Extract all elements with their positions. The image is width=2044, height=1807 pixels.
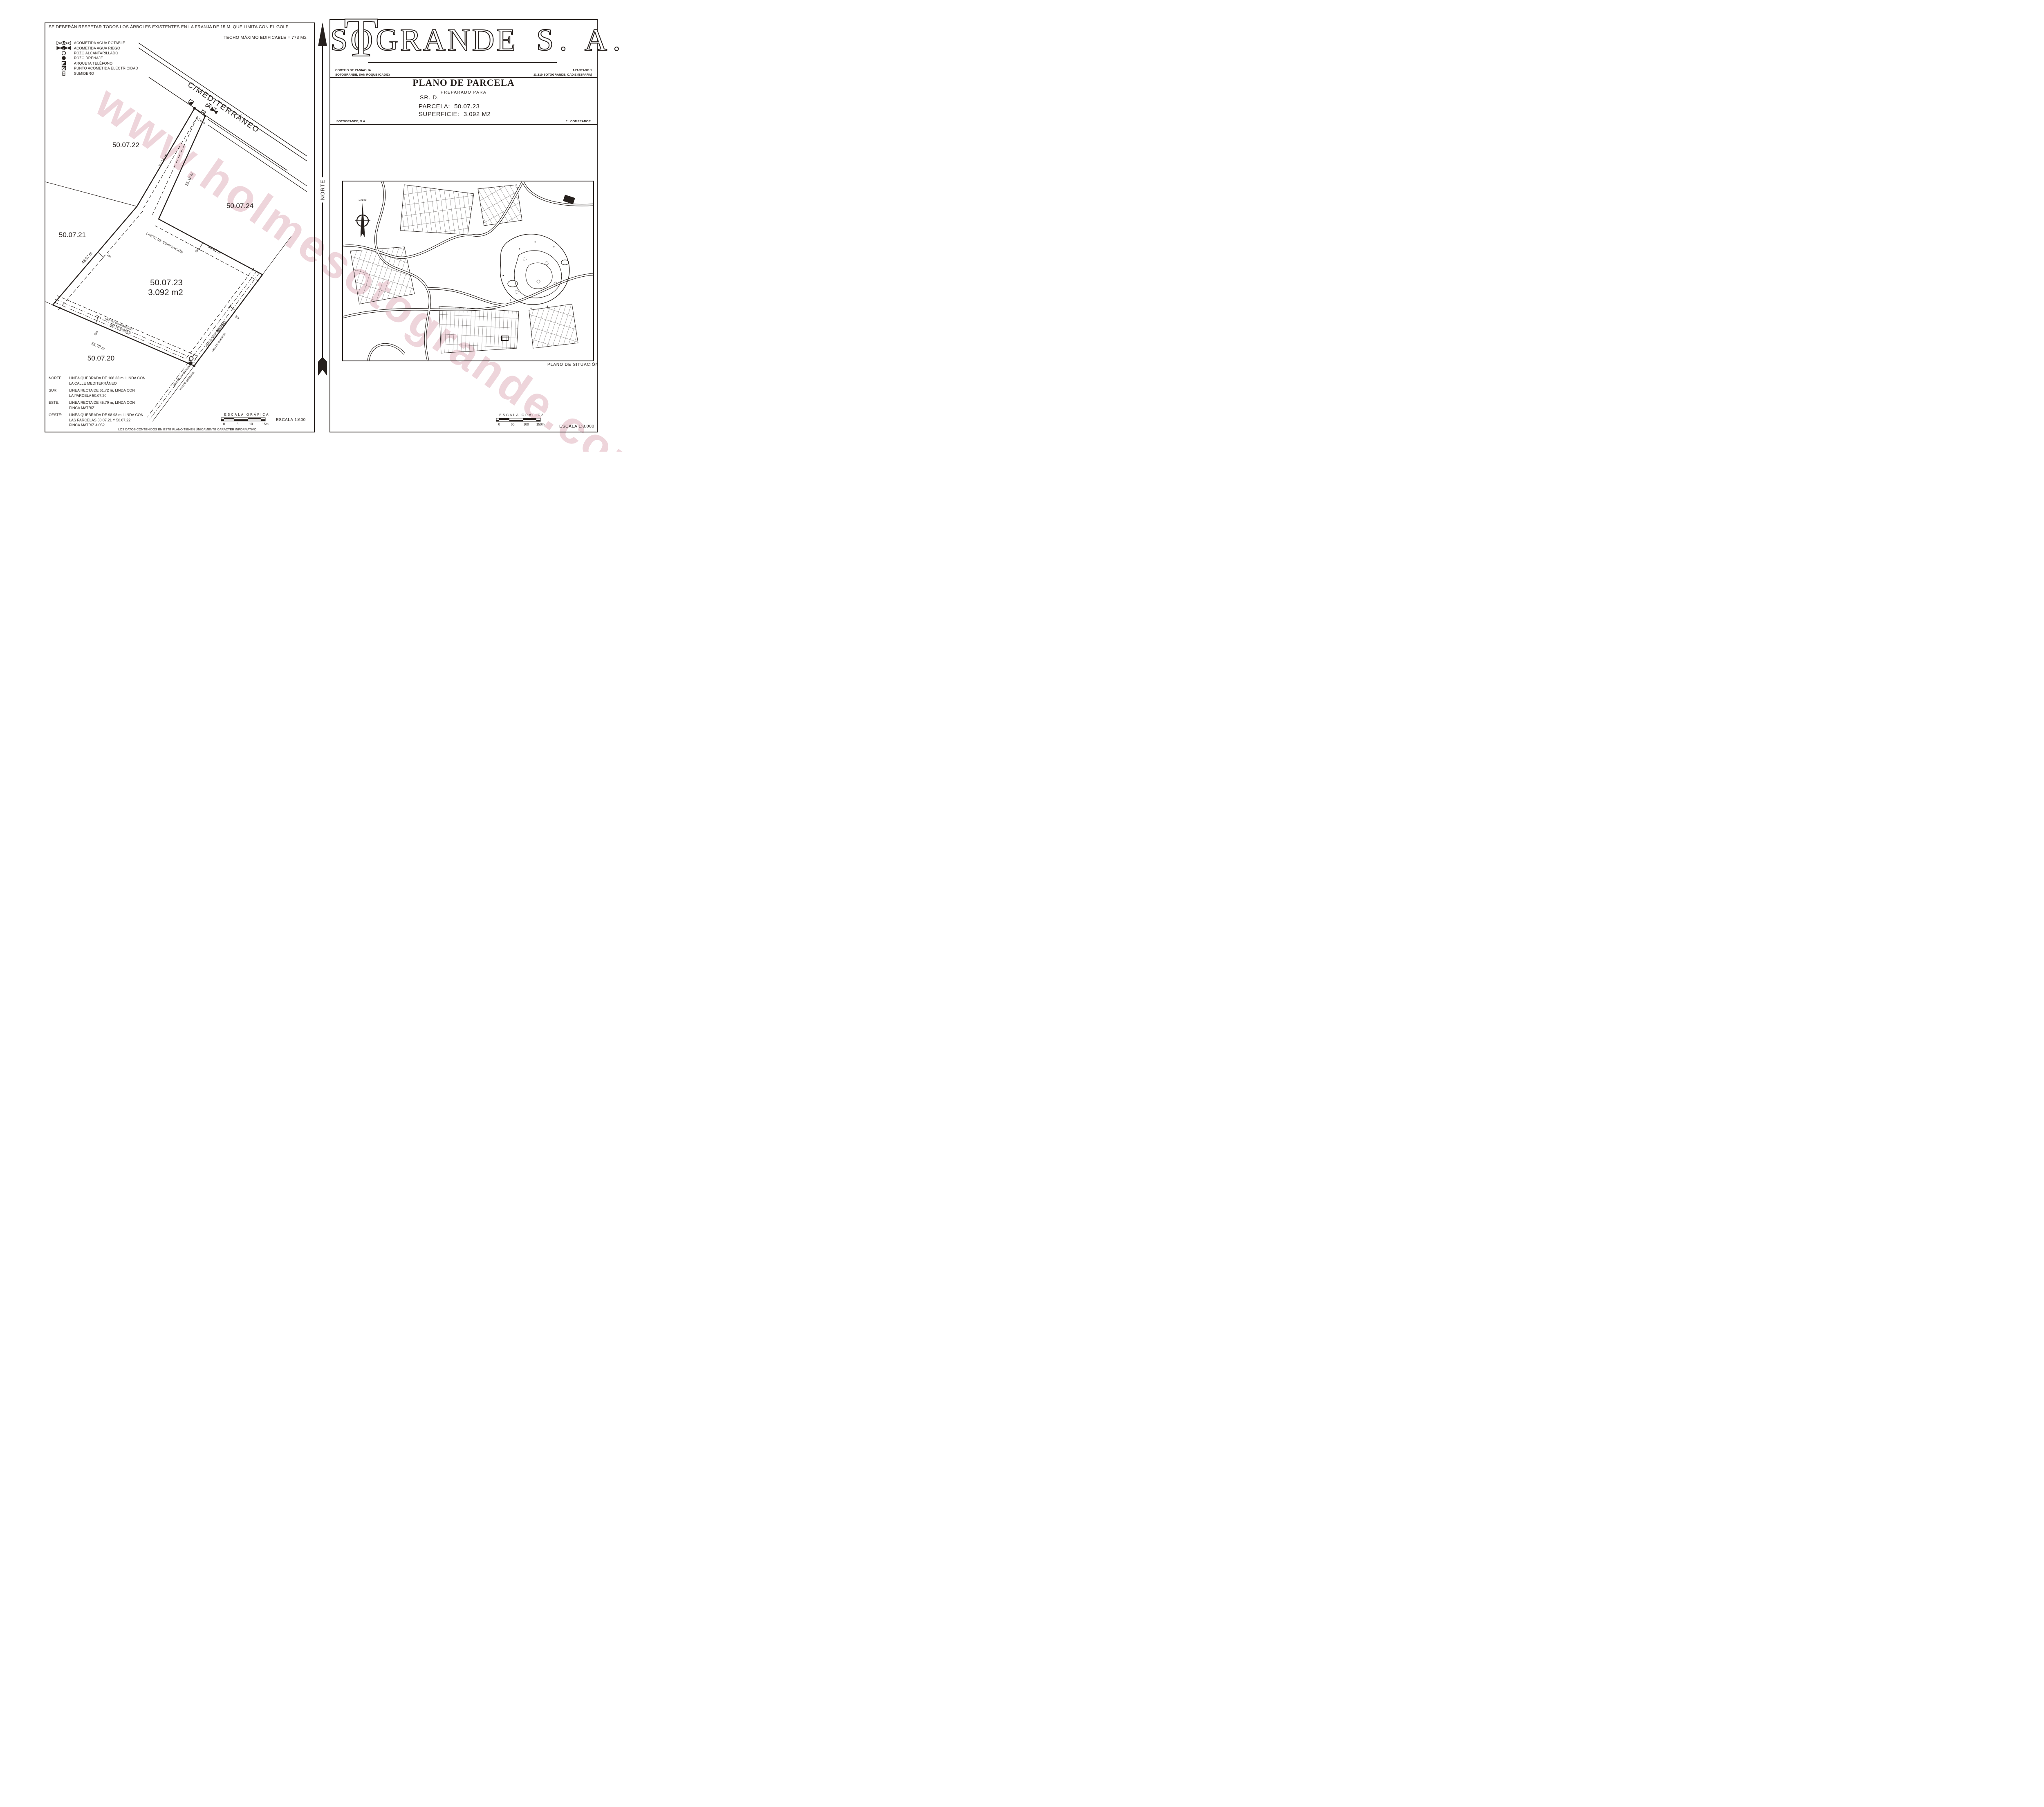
electricity-point-icon — [56, 66, 72, 71]
south-corner-point — [193, 365, 195, 367]
telephone-box-icon — [56, 61, 72, 66]
legend-label: POZO ALCANTARILLADO — [74, 51, 118, 55]
north-label: NORTE — [319, 177, 327, 203]
irrigation-valve-icon — [56, 46, 72, 50]
legend-row: ACOMETIDA AGUA RIEGO — [56, 45, 138, 50]
water-supply-valve-icon — [56, 41, 72, 45]
street-label: C/MEDITERRÁNEO — [186, 81, 261, 135]
drain-well-icon — [56, 56, 72, 60]
dim-north-lower: 48.91 m — [207, 245, 222, 255]
setback-label-south: 3m — [94, 330, 99, 336]
neighbor-parcel-w: 50.07.21 — [59, 231, 86, 239]
parcel-plan-page: www.holmesotogrande.com — [0, 0, 639, 452]
parcel-number-label: 50.07.23 — [150, 278, 183, 287]
title-sheet: SOTGRANDES. A. CORTIJO DE PANIAGUA SOTOG… — [329, 19, 598, 432]
dim-west-upper: 50.36 m — [158, 153, 169, 168]
dim-west-lower: 48.62 m — [81, 251, 94, 264]
scale-tick: 150m — [536, 423, 545, 426]
corner-point-icon — [204, 115, 206, 117]
area-row: SUPERFICIE:3.092 M2 — [419, 111, 491, 118]
scale-tick: 15m — [262, 422, 269, 426]
boundary-south: SUR: LINEA RECTA DE 61.72 m, LINDA CON L… — [49, 388, 146, 398]
scale-tick: 10 — [249, 422, 253, 426]
firm-buyer: EL COMPRADOR — [565, 119, 591, 123]
address-line: 11.310 SOTOGRANDE, CADIZ (ESPAÑA) — [533, 73, 592, 77]
dim-south: 61.72 m — [91, 342, 105, 352]
parcel-plan-sheet: C/MEDITERRÁNEO 8.26 m 50.36 m 51.16 m 48… — [45, 22, 315, 432]
client-name: SR. D. — [420, 94, 439, 101]
boundary-line: LINEA QUEBRADA DE 108.33 m, LINDA CON — [69, 376, 146, 381]
legend-label: ARQUETA TELÉFONO — [74, 61, 112, 65]
boundary-dir: ESTE: — [49, 400, 69, 410]
boundary-descriptions: NORTE: LINEA QUEBRADA DE 108.33 m, LINDA… — [49, 376, 146, 430]
setback-label-east: 3m — [234, 314, 240, 320]
address-line: APARTADO 1 — [533, 68, 592, 73]
logo-letter-t: T — [344, 4, 378, 69]
setback-label-west: 3m — [106, 253, 112, 259]
boundary-line: LINEA QUEBRADA DE 98.98 m, LINDA CON — [69, 412, 143, 418]
dim-neck-east: 51.16 m — [185, 172, 195, 186]
max-buildable-note: TECHO MÁXIMO EDIFICABLE = 773 M2 — [224, 35, 307, 40]
legend-row: POZO ALCANTARILLADO — [56, 51, 138, 56]
boundary-north: NORTE: LINEA QUEBRADA DE 108.33 m, LINDA… — [49, 376, 146, 386]
legend-row: POZO DRENAJE — [56, 56, 138, 60]
legend-label: SUMIDERO — [74, 72, 94, 76]
logo-grande: GRANDE — [376, 23, 518, 57]
boundary-west: OESTE: LINEA QUEBRADA DE 98.98 m, LINDA … — [49, 412, 146, 428]
area-label: SUPERFICIE: — [419, 111, 459, 118]
address-right: APARTADO 1 11.310 SOTOGRANDE, CADIZ (ESP… — [533, 68, 592, 77]
logo-sa: S. A. — [536, 23, 626, 57]
neighbor-parcel-s: 50.07.20 — [87, 354, 114, 362]
boundary-line: LA CALLE MEDITERRÁNEO — [69, 381, 146, 386]
parcel-area-label: 3.092 m2 — [148, 288, 183, 297]
boundary-line: LAS PARCELAS 50.07.21 Y 50.07.22 — [69, 418, 143, 423]
situation-map: NORTE — [342, 181, 594, 361]
scale-ratio-left: ESCALA 1:600 — [276, 418, 306, 422]
situation-map-label: PLANO DE SITUACIÓN — [547, 363, 599, 367]
graphic-scale-title: ESCALA GRÁFICA — [495, 413, 549, 417]
logo-underline — [368, 62, 557, 63]
sewer-well-icon — [56, 51, 72, 56]
boundary-dir: OESTE: — [49, 412, 69, 428]
area-value: 3.092 M2 — [464, 111, 491, 118]
sheet-title: PLANO DE PARCELA — [330, 78, 597, 88]
legend-row: ARQUETA TELÉFONO — [56, 61, 138, 66]
firm-seller: SOTOGRANDE, S.A. — [336, 119, 366, 123]
address-left: CORTIJO DE PANIAGUA SOTOGRANDE, SAN ROQU… — [335, 68, 390, 77]
scale-tick: 0 — [223, 422, 225, 426]
graphic-scale-title: ESCALA GRÁFICA — [220, 413, 273, 416]
parcel-plan-drawing: C/MEDITERRÁNEO 8.26 m 50.36 m 51.16 m 48… — [45, 23, 314, 432]
neighbor-parcel-nw: 50.07.22 — [112, 141, 139, 149]
compass-icon: NORTE — [355, 199, 370, 237]
boundary-line: LINEA RECTA DE 45.79 m, LINDA CON — [69, 400, 135, 405]
boundary-dir: SUR: — [49, 388, 69, 398]
informative-footnote: LOS DATOS CONTENIDOS EN ESTE PLANO TIENE… — [118, 428, 250, 431]
scale-tick: 50 — [511, 423, 515, 426]
legend-label: ACOMETIDA AGUA POTABLE — [74, 41, 125, 45]
setback-label-north: 3m — [195, 247, 200, 253]
parcel-row: PARCELA:50.07.23 — [419, 103, 480, 110]
boundary-east: ESTE: LINEA RECTA DE 45.79 m, LINDA CON … — [49, 400, 146, 410]
building-limit-label: LÍMITE DE EDIFICACIÓN — [146, 232, 184, 254]
legend-row: SUMIDERO — [56, 71, 138, 76]
scale-tick: 100 — [523, 423, 529, 426]
north-arrow-head-icon — [318, 22, 327, 46]
legend-row: PUNTO ACOMETIDA ELECTRICIDAD — [56, 66, 138, 71]
graphic-scale-right: ESCALA GRÁFICA 0 50 100 150m — [495, 413, 549, 429]
subject-parcel-marker — [563, 195, 575, 204]
drain-well-top-icon — [193, 107, 196, 110]
boundary-line: FINCA MATRIZ 4.052 — [69, 423, 143, 428]
address-line: SOTOGRANDE, SAN ROQUE (CADIZ) — [335, 73, 390, 77]
storm-drain-icon — [56, 71, 72, 76]
boundary-line: LA PARCELA 50.07.20 — [69, 393, 135, 399]
electricity-point-icon — [201, 110, 206, 115]
boundary-line: FINCA MATRIZ — [69, 405, 135, 411]
boundary-dir: NORTE: — [49, 376, 69, 386]
golf-course — [500, 234, 569, 309]
trees-disclaimer: SE DEBERÁN RESPETAR TODOS LOS ÁRBOLES EX… — [49, 25, 288, 29]
legend-label: POZO DRENAJE — [74, 56, 103, 60]
scale-tick: 0 — [498, 423, 500, 426]
legend-label: PUNTO ACOMETIDA ELECTRICIDAD — [74, 66, 138, 70]
parcel-label: PARCELA: — [419, 103, 450, 110]
sewer-well-icon — [189, 356, 193, 360]
scale-tick: 5 — [237, 422, 239, 426]
neighbor-parcel-ne: 50.07.24 — [226, 202, 253, 210]
compass-north-label: NORTE — [359, 199, 366, 202]
rule — [330, 124, 597, 125]
sheet-subtitle: PREPARADO PARA — [330, 90, 597, 95]
legend-row: ACOMETIDA AGUA POTABLE — [56, 40, 138, 45]
north-arrow-strip: NORTE — [316, 19, 329, 431]
boundary-line: LINEA RECTA DE 61.72 m, LINDA CON — [69, 388, 135, 393]
graphic-scale-left: ESCALA GRÁFICA 0 5 10 15m — [220, 413, 273, 428]
legend: ACOMETIDA AGUA POTABLE ACOMETIDA AGUA RI… — [56, 40, 138, 76]
north-arrow-fletching-icon — [318, 357, 327, 376]
scale-ratio-right: ESCALA 1:8.000 — [559, 424, 594, 429]
legend-label: ACOMETIDA AGUA RIEGO — [74, 46, 120, 50]
parcel-value: 50.07.23 — [454, 103, 480, 110]
address-line: CORTIJO DE PANIAGUA — [335, 68, 390, 73]
